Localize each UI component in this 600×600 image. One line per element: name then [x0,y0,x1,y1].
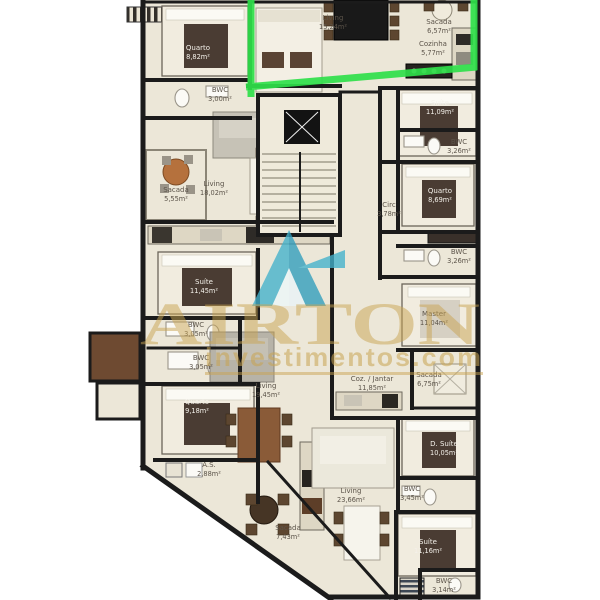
svg-text:BWC: BWC [212,86,228,94]
svg-text:23,66m²: 23,66m² [337,496,365,504]
svg-text:A.S.: A.S. [202,461,216,469]
svg-text:3,26m²: 3,26m² [447,147,471,155]
svg-text:2,88m²: 2,88m² [197,470,221,478]
svg-text:3,26m²: 3,26m² [447,257,471,265]
svg-text:8,69m²: 8,69m² [428,196,452,204]
svg-text:10,05m²: 10,05m² [430,449,458,457]
svg-text:Sacada: Sacada [275,524,301,532]
svg-text:11,16m²: 11,16m² [414,547,442,555]
svg-text:Coz. / Jantar: Coz. / Jantar [351,375,394,383]
svg-text:Living: Living [204,180,225,188]
room-label-cozinha: Cozinha5,77m² [419,40,447,57]
svg-text:18,02m²: 18,02m² [200,189,228,197]
svg-text:3,78m²: 3,78m² [377,210,401,218]
watermark-tagline: investimentos.com [205,342,483,372]
svg-text:11,09m²: 11,09m² [426,108,454,116]
room-label-quarto-1: Quarto8,82m² [186,44,210,61]
side-balcony-box [97,383,140,419]
svg-text:Living: Living [256,382,277,390]
room-label-dsuite: D. Suíte10,05m² [430,440,458,457]
svg-text:8,82m²: 8,82m² [186,53,210,61]
stair-core [258,95,340,235]
svg-text:BWC: BWC [404,485,420,493]
svg-text:D. Suíte: D. Suíte [430,440,458,448]
room-label-living-3: Living19,45m² [252,382,280,399]
room-label-living-2: Living15,24m² [319,14,347,31]
room-label-sacada-1: Sacada5,55m² [163,186,189,203]
svg-text:Suíte: Suíte [419,538,437,546]
bed [162,6,248,76]
room-label-living-4: Living23,66m² [337,487,365,504]
side-planter-box [90,333,140,381]
svg-text:Living: Living [323,14,344,22]
svg-text:5,55m²: 5,55m² [164,195,188,203]
floor-plan-image: Quarto8,82m² BWC3,00m² Sacada5,55m² Livi… [0,0,600,600]
svg-text:3,14m²: 3,14m² [432,586,456,594]
svg-text:6,57m²: 6,57m² [427,27,451,35]
svg-text:6,75m²: 6,75m² [417,380,441,388]
bed [402,164,474,226]
watermark-rule [205,372,483,375]
svg-text:Circ: Circ [382,201,396,209]
svg-text:9,18m²: 9,18m² [185,407,209,415]
bed [398,514,476,576]
room-label-quarto-2: Quarto8,69m² [428,187,452,204]
svg-text:11,85m²: 11,85m² [358,384,386,392]
svg-text:Sacada: Sacada [163,186,189,194]
svg-text:15,24m²: 15,24m² [319,23,347,31]
sofa [312,428,394,488]
svg-text:7,43m²: 7,43m² [276,533,300,541]
svg-text:Sacada: Sacada [426,18,452,26]
room-label-quarto-3: Quarto9,18m² [185,398,209,415]
svg-text:Quarto: Quarto [186,44,210,52]
svg-text:19,45m²: 19,45m² [252,391,280,399]
svg-text:BWC: BWC [451,248,467,256]
svg-text:3,00m²: 3,00m² [208,95,232,103]
room-label-living-1: Living18,02m² [200,180,228,197]
room-label-sacada-4: Sacada7,43m² [275,524,301,541]
svg-text:5,77m²: 5,77m² [421,49,445,57]
svg-text:BWC: BWC [436,577,452,585]
room-label-sacada-2: Sacada6,57m² [426,18,452,35]
svg-text:Quarto: Quarto [428,187,452,195]
svg-text:Quarto: Quarto [185,398,209,406]
svg-text:Suíte: Suíte [195,278,213,286]
closet [428,233,476,243]
svg-text:BWC: BWC [451,138,467,146]
svg-text:Cozinha: Cozinha [419,40,447,48]
svg-text:Living: Living [341,487,362,495]
svg-text:3,45m²: 3,45m² [400,494,424,502]
svg-text:Suíte: Suíte [431,99,449,107]
